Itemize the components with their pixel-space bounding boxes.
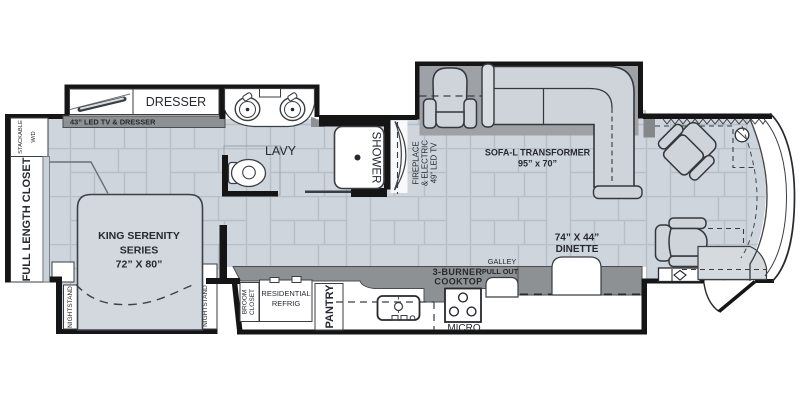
svg-text:SOFA-L TRANSFORMER: SOFA-L TRANSFORMER — [485, 148, 591, 158]
svg-text:PULL OUT: PULL OUT — [482, 267, 519, 276]
svg-text:FIREPLACE: FIREPLACE — [412, 141, 421, 184]
svg-text:NIGHTSTAND: NIGHTSTAND — [67, 286, 74, 328]
svg-text:RESIDENTIAL: RESIDENTIAL — [261, 289, 310, 298]
svg-text:BROOM: BROOM — [242, 290, 249, 315]
svg-text:DINETTE: DINETTE — [556, 244, 599, 255]
svg-text:W/D: W/D — [31, 131, 37, 142]
svg-text:PANTRY: PANTRY — [324, 284, 336, 329]
svg-text:KING SERENITY: KING SERENITY — [98, 230, 180, 242]
svg-text:FULL LENGTH CLOSET: FULL LENGTH CLOSET — [21, 157, 33, 281]
svg-text:72” X 80”: 72” X 80” — [116, 259, 163, 271]
svg-text:3-BURNER: 3-BURNER — [433, 267, 483, 277]
svg-text:GALLEY: GALLEY — [488, 257, 517, 266]
svg-text:43” LED TV & DRESSER: 43” LED TV & DRESSER — [70, 118, 156, 127]
svg-text:SERIES: SERIES — [120, 245, 159, 257]
svg-text:49” LED TV: 49” LED TV — [430, 142, 439, 183]
svg-text:REFRIG: REFRIG — [272, 299, 301, 308]
svg-text:SHOWER: SHOWER — [370, 132, 382, 184]
svg-text:& ELECTRIC: & ELECTRIC — [421, 140, 430, 186]
svg-text:CLOSET: CLOSET — [249, 289, 256, 315]
svg-text:DRESSER: DRESSER — [146, 95, 206, 109]
svg-text:COOKTOP: COOKTOP — [434, 277, 482, 287]
svg-text:95” x 70”: 95” x 70” — [518, 159, 557, 169]
svg-text:MICRO: MICRO — [447, 323, 481, 334]
svg-text:74” X 44”: 74” X 44” — [555, 233, 599, 244]
svg-text:STACKABLE: STACKABLE — [18, 120, 24, 154]
